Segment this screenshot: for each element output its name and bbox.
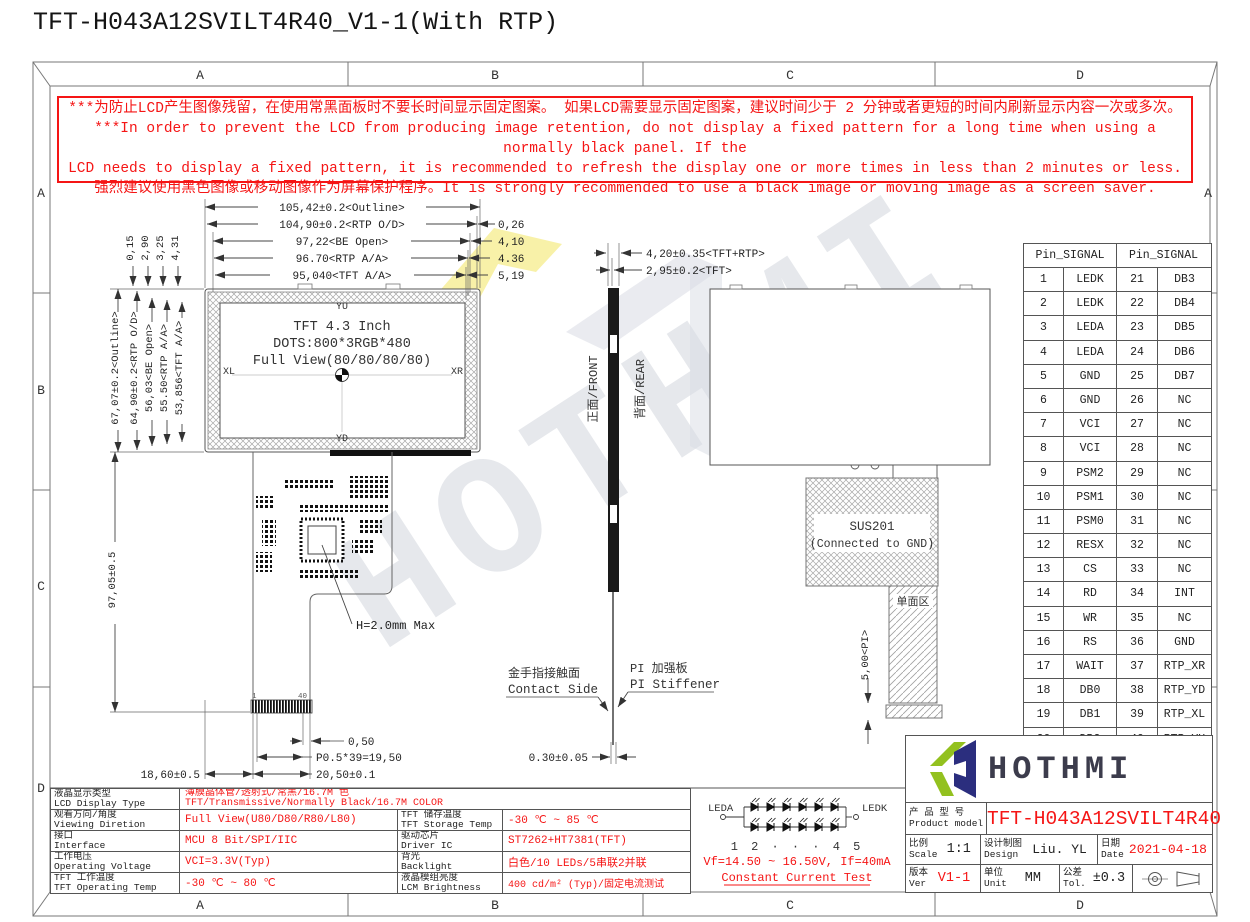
pin40-label: 40 [298,693,308,701]
ledk-label: LEDK [862,803,888,815]
zone-letter: A [37,186,45,201]
hothmi-logo-icon [926,740,980,798]
pin-row: 1LEDK21DB3 [1024,268,1211,292]
pin-row: 7VCI27NC [1024,413,1211,437]
dim-label: P0.5*39=19,50 [316,753,402,765]
fpc-drawing: 1 40 H=2.0mm Max 0,50 P0 [141,452,436,782]
dim-label: 0,26 [498,220,524,232]
zone-letter: C [786,898,794,913]
unit-value: MM [1007,871,1059,886]
dim-label: 4.36 [498,254,524,266]
logo-row: HOTHMI [906,736,1212,803]
zone-letter: A [1204,186,1212,201]
fpc-connector [251,700,312,713]
panel-size-label: TFT 4.3 Inch [293,320,390,335]
logo-text: HOTHMI [988,751,1133,788]
warning-line: ***In order to prevent the LCD from prod… [59,119,1191,159]
dim-label: 5,19 [498,271,524,283]
sus-label: SUS201 [849,520,894,534]
pin-row: 16RS36GND [1024,631,1211,655]
led-test-label: Constant Current Test [721,871,872,885]
dim-label: 56,03<BE Open> [144,324,156,412]
rear-view: SUS201 (Connected to GND) 单面区 5,00<PI> [710,285,990,744]
zone-letter: C [786,68,794,83]
contact-side-label-en: Contact Side [508,683,598,697]
zone-letter: C [37,579,45,594]
dim-label: 55.50<RTP A/A> [159,324,171,412]
dim-label: H=2.0mm Max [356,619,435,633]
date-value: 2021-04-18 [1124,842,1212,857]
dim-label: 0,50 [348,737,374,749]
pin-row: 6GND26NC [1024,389,1211,413]
zone-letter: D [37,781,45,796]
dim-label: 0,15 [125,235,137,260]
dim-label: 20,50±0.1 [316,770,376,782]
product-model-row: 产 品 型 号Product model TFT-H043A12SVILT4R4… [906,803,1212,835]
dim-label: 5,00<PI> [860,630,872,680]
drawing-title: TFT-H043A12SVILT4R40_V1-1(With RTP) [33,8,558,37]
pin-row: 3LEDA23DB5 [1024,316,1211,340]
pin-row: 15WR35NC [1024,607,1211,631]
projection-symbol-icon [1141,868,1205,890]
dim-label: 4,20±0.35<TFT+RTP> [646,249,765,261]
dim-label: 67,07±0.2<Outline> [110,311,122,424]
dim-label: 97,05±0.5 [107,552,119,609]
dim-label: 0.30±0.05 [529,753,588,765]
spec-row: TFT 工作温度TFT Operating Temp -30 ℃ ~ 80 ℃ … [51,872,690,893]
scale-value: 1:1 [938,842,980,857]
zone-letter: A [196,898,204,913]
axis-label-xr: XR [451,367,463,378]
pin-row: 13CS33NC [1024,558,1211,582]
spec-row: 观看方向/角度Viewing Diretion Full View(U80/D8… [51,809,690,830]
panel-dots-label: DOTS:800*3RGB*480 [273,337,411,352]
pin-row: 9PSM229NC [1024,462,1211,486]
front-view: YU TFT 4.3 Inch DOTS:800*3RGB*480 Full V… [205,284,480,456]
zone-letter: A [196,68,204,83]
pin-row: 17WAIT37RTP_XR [1024,655,1211,679]
version-value: V1-1 [928,871,980,886]
ver-unit-tol-row: 版本Ver V1-1 单位Unit MM 公差Tol. ±0.3 [906,865,1212,892]
led-circuit: LEDA LEDK 1 2 · · · 4 5 Vf=14.50 ~ 16.50… [703,798,891,885]
axis-label-xl: XL [223,367,235,378]
dim-label: 2,95±0.2<TFT> [646,266,732,278]
dim-label: 2,90 [140,235,152,260]
warning-line: ***为防止LCD产生图像残留，在使用常黑面板时不要长时间显示固定图案。 如果L… [59,99,1191,119]
fpc-components [256,476,390,578]
spec-row: 工作电压Operating Voltage VCI=3.3V(Typ) 背光Ba… [51,851,690,872]
spec-row: 接口Interface MCU 8 Bit/SPI/IIC 驱动芯片Driver… [51,830,690,851]
pin-row: 12RESX32NC [1024,534,1211,558]
spec-table: 液晶显示类型LCD Display Type 薄膜晶体管/透射式/常黑/16.7… [50,788,691,894]
axis-label-yd: YD [336,434,348,445]
zone-letter: B [491,898,499,913]
dim-label: 104,90±0.2<RTP O/D> [279,220,404,232]
pin-table-header: Pin_SIGNAL Pin_SIGNAL [1024,244,1211,268]
dim-label: 3,25 [155,235,167,260]
rear-side-label: 背面/REAR [633,359,648,419]
spec-row: 液晶显示类型LCD Display Type 薄膜晶体管/透射式/常黑/16.7… [51,789,690,809]
contact-side-label-cn: 金手指接触面 [508,665,580,681]
panel-view-label: Full View(80/80/80/80) [253,354,431,369]
warning-line: LCD needs to display a fixed pattern, it… [59,159,1191,179]
dim-label: 18,60±0.5 [141,770,200,782]
dim-label: 95,040<TFT A/A> [292,271,391,283]
pin-row: 19DB139RTP_XL [1024,703,1211,727]
dim-label: 4,31 [170,235,182,260]
product-model-value: TFT-H043A12SVILT4R40 [987,808,1221,830]
pin-row: 5GND25DB7 [1024,365,1211,389]
zone-letter: D [1076,898,1084,913]
dim-label: 96.70<RTP A/A> [296,254,388,266]
dim-label: 4,10 [498,237,524,249]
scale-design-date-row: 比例Scale 1:1 设计制图Design Liu. YL 日期Date 20… [906,835,1212,865]
pin-row: 8VCI28NC [1024,437,1211,461]
leda-label: LEDA [708,803,734,815]
dim-label: 97,22<BE Open> [296,237,388,249]
pin-row: 2LEDK22DB4 [1024,292,1211,316]
dim-label: 53,856<TFT A/A> [174,321,186,416]
pin-row: 14RD34INT [1024,582,1211,606]
dim-label: 105,42±0.2<Outline> [279,203,404,215]
zone-letter: D [1076,68,1084,83]
pin-signal-table: Pin_SIGNAL Pin_SIGNAL 1LEDK21DB3 2LEDK22… [1023,243,1212,752]
pin-row: 10PSM130NC [1024,486,1211,510]
pi-stiffener-label-en: PI Stiffener [630,678,720,692]
dim-label: 64,90±0.2<RTP O/D> [129,311,141,424]
led-vf-label: Vf=14.50 ~ 16.50V, If=40mA [703,855,891,869]
single-side-label: 单面区 [897,595,930,609]
zone-letter: B [37,383,45,398]
zone-letter: B [491,68,499,83]
front-side-label: 正面/FRONT [587,355,601,422]
pin1-label: 1 [252,693,257,701]
tolerance-value: ±0.3 [1086,871,1132,886]
pi-stiffener-label-cn: PI 加强板 [630,661,688,676]
design-value: Liu. YL [1022,842,1097,857]
pin-row: 18DB038RTP_YD [1024,679,1211,703]
pin-row: 4LEDA24DB6 [1024,341,1211,365]
pin-row: 11PSM031NC [1024,510,1211,534]
warning-box: ***为防止LCD产生图像残留，在使用常黑面板时不要长时间显示固定图案。 如果L… [57,96,1193,183]
sus-gnd-label: (Connected to GND) [810,538,934,551]
axis-label-yu: YU [336,302,348,313]
led-index-label: 1 2 · · · 4 5 [731,840,864,854]
warning-line: 强烈建议使用黑色图像或移动图像作为屏幕保护程序。It is strongly r… [59,179,1191,199]
title-block: HOTHMI 产 品 型 号Product model TFT-H043A12S… [905,735,1213,893]
